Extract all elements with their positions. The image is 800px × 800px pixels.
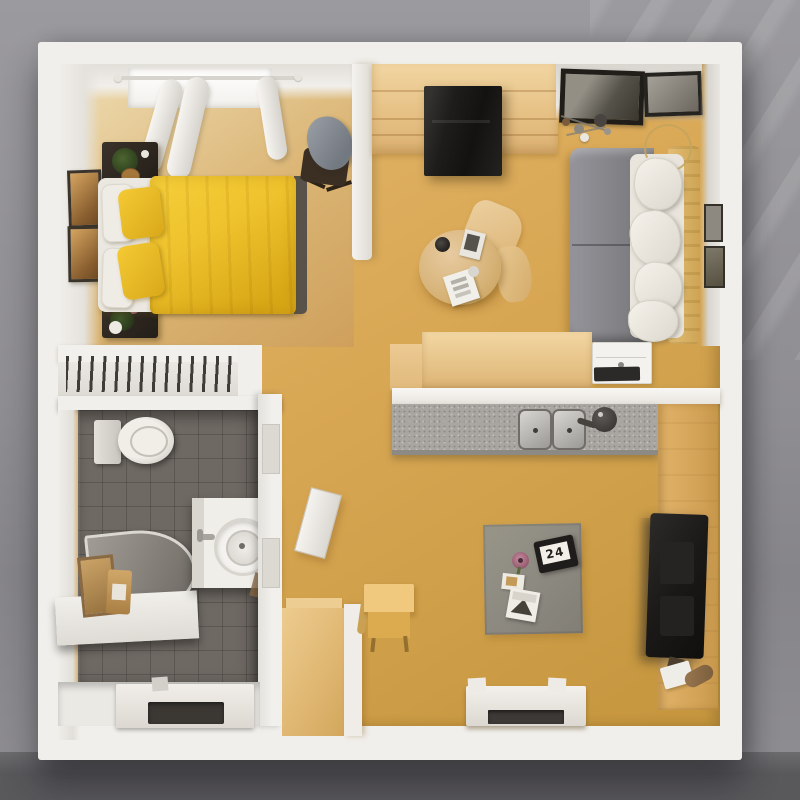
dark-appliance <box>594 367 640 382</box>
wall-desk <box>368 612 410 638</box>
faucet-highlight <box>598 412 603 417</box>
black-cabinet <box>424 86 502 176</box>
dish <box>109 321 122 334</box>
dried-flower <box>562 118 570 126</box>
bathroom-north-wall <box>58 396 282 410</box>
curtain-rod-cap <box>114 74 122 82</box>
threshold-block <box>468 678 487 693</box>
curtain-rod-cap <box>294 73 302 81</box>
sink-drain <box>239 543 245 549</box>
tv <box>646 513 709 659</box>
bedroom-divider-wall <box>352 64 372 260</box>
wall-panel <box>262 424 280 474</box>
yellow-pillow <box>117 186 165 241</box>
toilet-tank <box>94 420 121 464</box>
vanity-faucet <box>197 529 203 542</box>
yellow-pillow <box>116 241 166 301</box>
photo-print <box>506 588 541 623</box>
vanity-edge <box>192 498 204 588</box>
plate <box>468 266 479 277</box>
dried-flower <box>580 133 589 142</box>
sink-basin <box>552 409 586 450</box>
radiator <box>66 356 234 392</box>
toilet-bowl <box>118 417 174 464</box>
kitchen-cabinet <box>422 332 592 390</box>
bed-duvet <box>150 176 296 314</box>
counter-half-wall <box>392 388 720 404</box>
entry-door-mat <box>488 710 564 724</box>
wall-panel <box>262 538 280 588</box>
photo-mountain <box>511 597 535 616</box>
threshold-block <box>152 676 169 691</box>
tv-speaker-panel <box>660 542 694 584</box>
dried-flower <box>604 128 611 135</box>
candle <box>141 150 149 158</box>
small-picture-frame <box>704 246 725 288</box>
tv-speaker-panel <box>660 596 694 636</box>
bottle-label <box>112 584 127 601</box>
cabinet-shelf-highlight <box>432 120 490 123</box>
sink-basin <box>518 409 552 450</box>
bathroom-door-mat <box>148 702 224 724</box>
dresser <box>282 608 344 736</box>
cup <box>435 237 450 252</box>
drawer-line <box>596 357 646 358</box>
wall-desk-lid <box>364 584 414 615</box>
picture-frame <box>643 71 703 117</box>
floorplan-render: 24 <box>0 0 800 800</box>
faucet <box>592 407 617 432</box>
dried-flower <box>594 114 607 127</box>
threshold-block <box>548 678 567 693</box>
small-picture-frame <box>704 204 723 242</box>
